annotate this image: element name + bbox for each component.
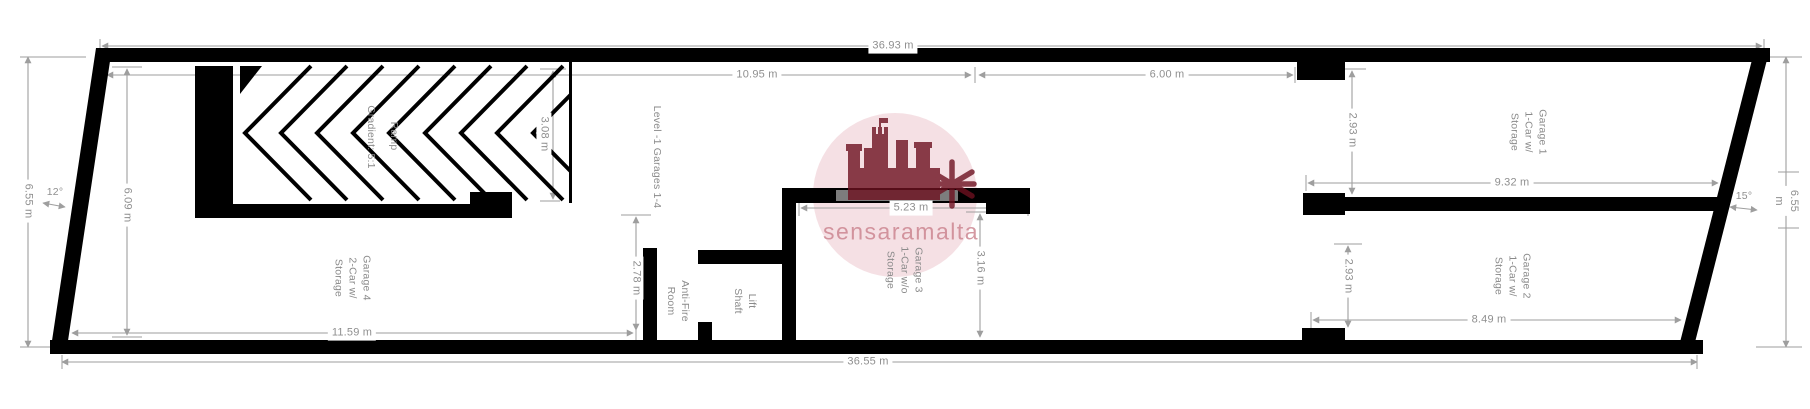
dim-overall-bottom: 36.55 m	[843, 355, 892, 370]
garage3-label: Garage 3 1-Car w/o Storage	[883, 242, 926, 297]
dim-garage3-width: 5.23 m	[890, 201, 933, 216]
floor-plan: 36.93 m 10.95 m 6.00 m 6.55 m 6.09 m 3.0…	[0, 0, 1810, 409]
dim-garage2-left-height: 2.93 m	[1341, 255, 1356, 298]
dim-upper-left-span: 10.95 m	[732, 68, 781, 83]
dim-garage4-width: 11.59 m	[328, 326, 376, 341]
dim-overall-top: 36.93 m	[868, 39, 917, 54]
ramp-gradient-label: Gradient: 5:1	[364, 101, 378, 172]
garage1-label: Garage 1 1-Car w/ Storage	[1507, 105, 1550, 158]
garage4-label: Garage 4 2-Car w/ Storage	[331, 251, 374, 304]
antifire-room-label: Anti-Fire Room	[664, 276, 692, 325]
watermark-text: sensaramalta	[823, 219, 979, 246]
dim-ramp-height: 3.08 m	[537, 113, 552, 156]
dim-garage3-height: 3.16 m	[973, 247, 988, 290]
lift-shaft-label: Lift Shaft	[731, 284, 759, 318]
level-area-label: Level -1 Garages 1-4	[650, 102, 664, 213]
dim-garage2-width: 8.49 m	[1468, 313, 1511, 328]
angle-left-label: 12°	[43, 185, 67, 199]
ramp-label: Ramp	[387, 118, 401, 155]
dim-passage-height: 2.78 m	[629, 257, 644, 300]
dim-upper-right-span: 6.00 m	[1146, 68, 1189, 83]
angle-right-label: 15°	[1732, 189, 1756, 203]
dim-garage4-left-height: 6.09 m	[120, 184, 135, 227]
dim-left-height: 6.55 m	[21, 180, 36, 223]
dim-garage1-left-height: 2.93 m	[1345, 109, 1360, 152]
garage2-label: Garage 2 1-Car w/ Storage	[1491, 249, 1534, 302]
dim-right-height: 6.55 m	[1771, 186, 1801, 216]
dim-garage1-width: 9.32 m	[1491, 176, 1534, 191]
